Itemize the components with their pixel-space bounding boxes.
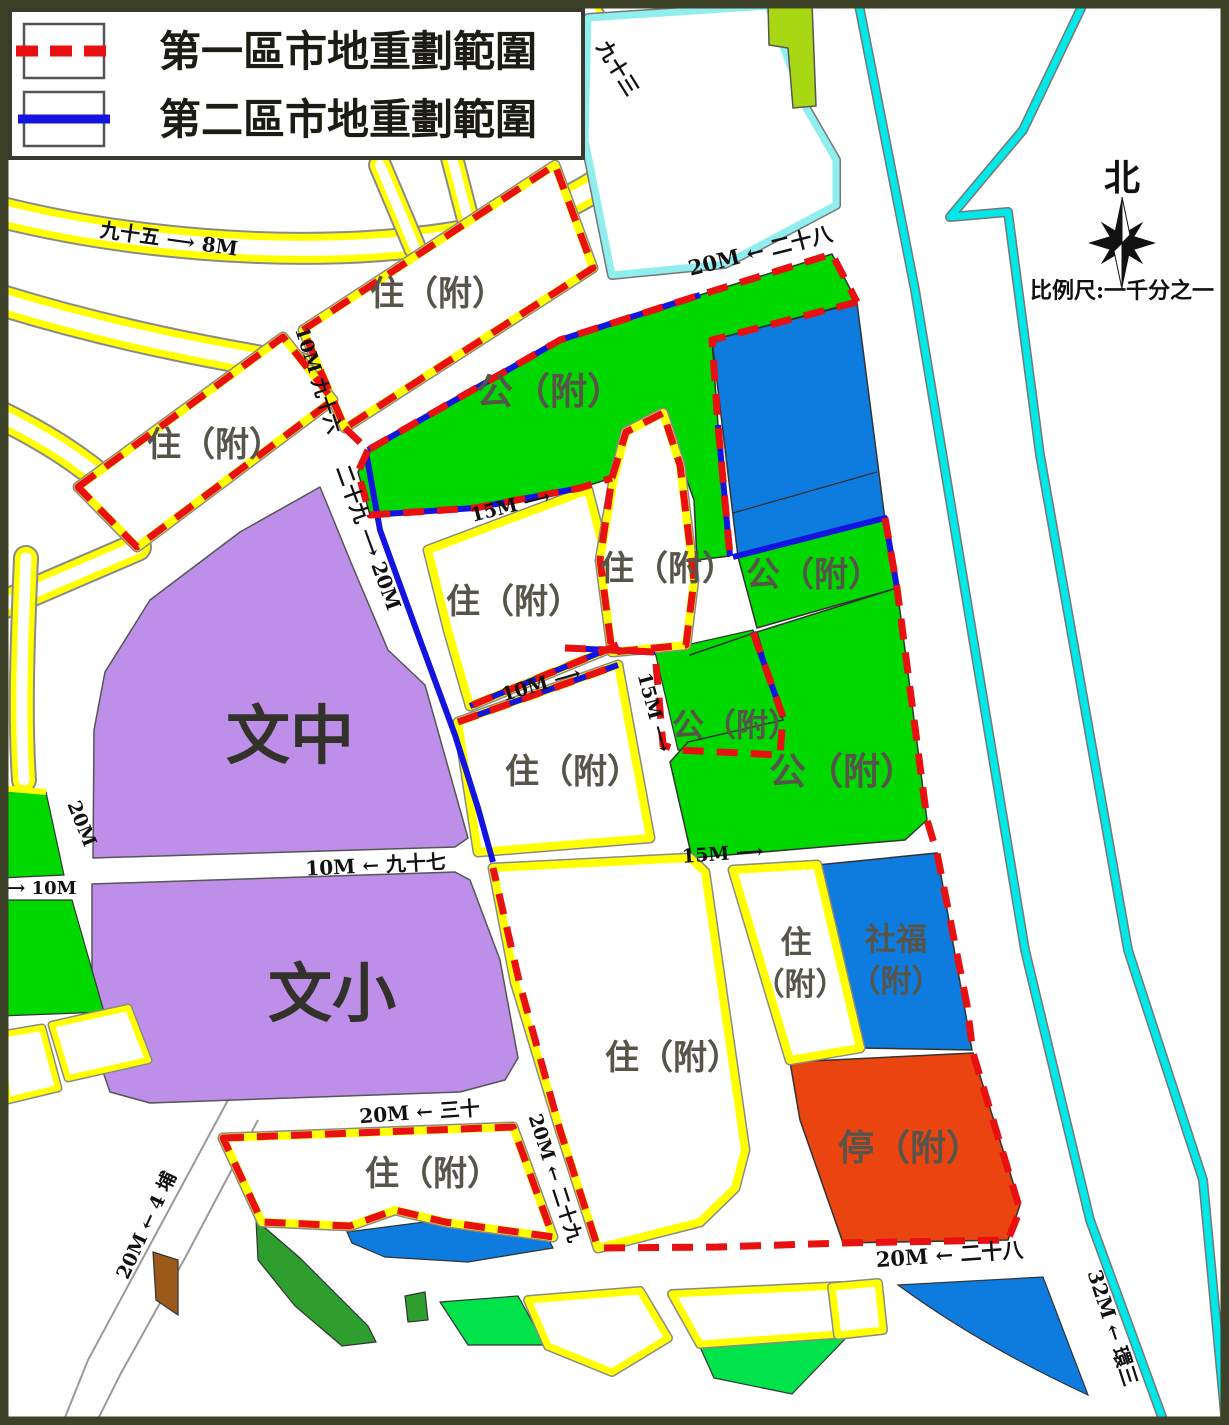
bottom-right-blue: [898, 1277, 1088, 1395]
brown-zone: [153, 1252, 178, 1315]
zone-label-residential-midleft: 住（附）: [446, 582, 582, 622]
zone-label-residential-left: 住（附）: [147, 425, 283, 465]
zone-label-residential-central: 住（附）: [605, 1038, 741, 1078]
parcel-small-left-2: [52, 1008, 148, 1078]
parcel-bottom-right: [832, 1283, 883, 1335]
zone-label-residential-tall: 住（附）: [600, 549, 736, 589]
zone-label-elementary: 文小: [268, 957, 396, 1032]
zone-label-public-north: 公（附）: [476, 369, 624, 413]
parcel-bottom-center: [528, 1291, 668, 1372]
zone-label-parking: 停（附）: [838, 1127, 982, 1169]
zone-label-public-south: 公（附）: [769, 749, 917, 793]
road-label-30: 20M ← 三十: [358, 1096, 480, 1128]
zone-label-social-welfare-2: （附）: [850, 964, 943, 1000]
parcel-bottom-center-2: [672, 1286, 852, 1344]
map-canvas: 住（附） 住（附） 公（附） 住（附） 公（附） 住（附） 住（附） 公（附） …: [0, 0, 1229, 1425]
legend-item-district2: 第二區市地重劃範圍: [18, 92, 537, 146]
zone-label-residential-column-2: （附）: [754, 967, 847, 1003]
compass-icon: [1080, 197, 1165, 289]
left-edge-road: [22, 558, 26, 780]
zone-label-residential-mid: 住（附）: [505, 752, 641, 792]
facility-blue-north: [712, 303, 885, 557]
legend-label-district1: 第一區市地重劃範圍: [159, 27, 537, 76]
legend-label-district2: 第二區市地重劃範圍: [159, 95, 537, 144]
road-label-10m-left: ⟶ 10M: [0, 878, 77, 899]
north-label: 北: [1104, 157, 1140, 199]
zone-label-residential-bottom: 住（附）: [365, 1154, 501, 1194]
dark-green-2: [405, 1292, 428, 1322]
scale-label: 比例尺:一千分之一: [1030, 278, 1214, 304]
zone-label-residential-top: 住（附）: [370, 274, 506, 314]
legend: 第一區市地重劃範圍 第二區市地重劃範圍: [10, 10, 583, 158]
zone-label-public-wedge: 公（附）: [672, 706, 800, 744]
zone-label-junior-high: 文中: [226, 699, 354, 774]
zone-label-public-right: 公（附）: [746, 555, 882, 595]
north-indicator: 北 比例尺:一千分之一: [1030, 157, 1214, 304]
parcel-small-left-1: [0, 1028, 58, 1100]
legend-item-district1: 第一區市地重劃範圍: [16, 24, 537, 78]
zone-label-residential-column-1: 住: [781, 925, 812, 961]
zoning-map: 住（附） 住（附） 公（附） 住（附） 公（附） 住（附） 住（附） 公（附） …: [0, 0, 1229, 1425]
zone-label-social-welfare-1: 社福: [865, 922, 927, 958]
